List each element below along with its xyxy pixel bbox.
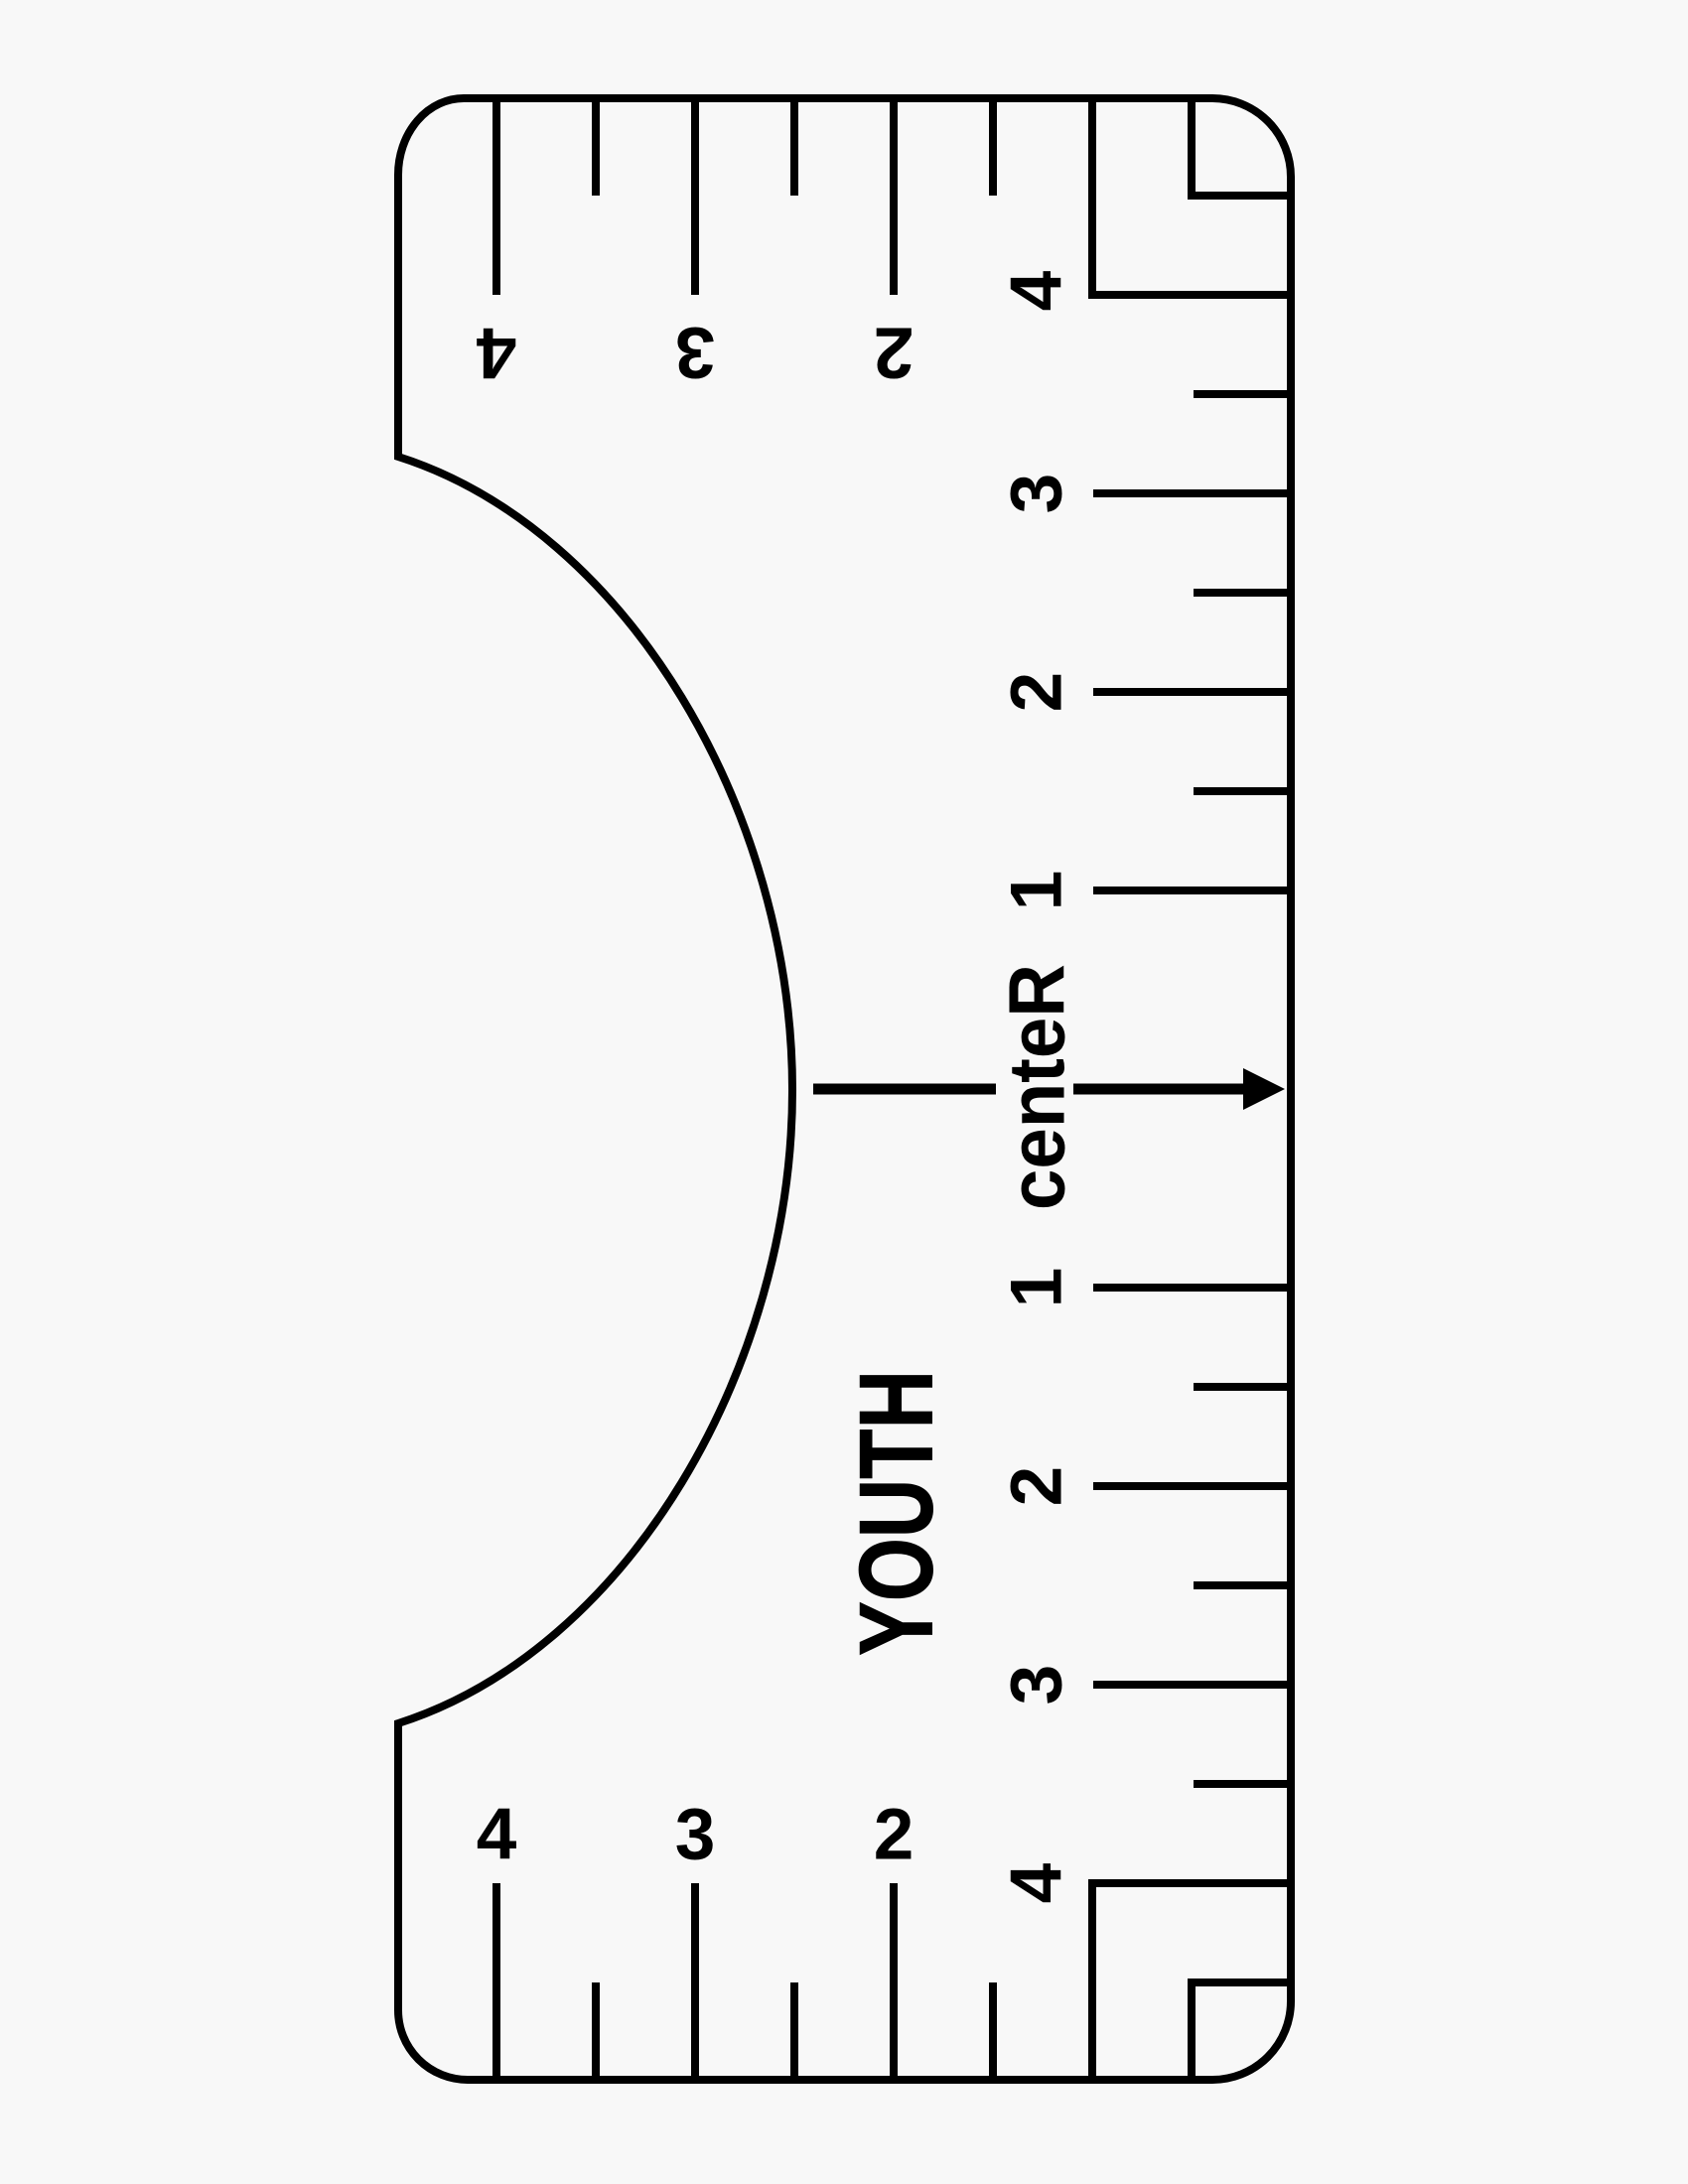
svg-text:4: 4 [477,1795,517,1875]
svg-text:4: 4 [476,313,516,393]
svg-text:2: 2 [997,672,1077,713]
svg-text:3: 3 [997,1665,1077,1706]
svg-text:2: 2 [874,313,914,393]
svg-text:centeR: centeR [993,964,1081,1210]
svg-text:3: 3 [675,1795,716,1875]
svg-text:2: 2 [997,1466,1077,1507]
svg-text:1: 1 [997,1268,1077,1308]
svg-text:2: 2 [874,1795,914,1875]
svg-text:1: 1 [997,871,1077,911]
svg-text:3: 3 [997,474,1077,514]
svg-text:4: 4 [997,1862,1077,1903]
svg-text:3: 3 [675,313,716,393]
svg-text:4: 4 [997,270,1077,311]
svg-text:YOUTH: YOUTH [839,1370,955,1656]
